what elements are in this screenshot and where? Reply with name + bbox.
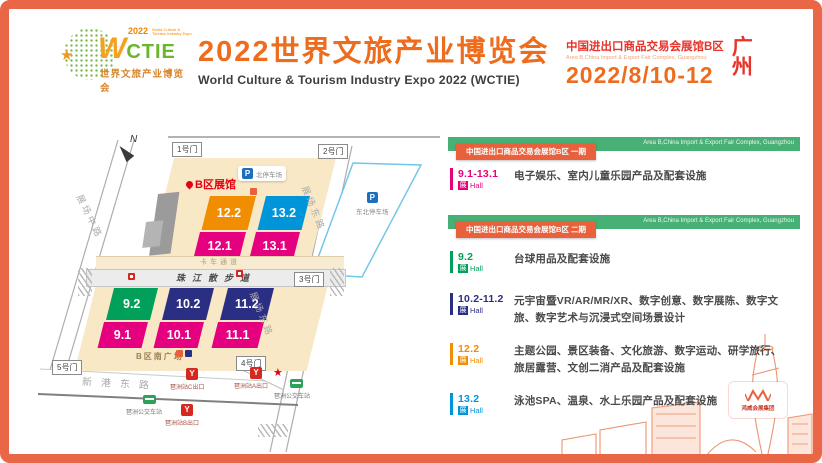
hall-range: 10.2-11.2 <box>458 293 514 305</box>
hall-description: 主题公园、景区装备、文化旅游、数字运动、研学旅行、旅居露营、文创二消产品及配套设… <box>514 343 786 377</box>
hall-description: 元宇宙暨VR/AR/MR/XR、数字创意、数字展陈、数字文旅、数字艺术与沉浸式空… <box>514 293 786 327</box>
entry-10-2-11-2: 10.2-11.2 展 Hall 元宇宙暨VR/AR/MR/XR、数字创意、数字… <box>450 293 786 327</box>
metro-icon: Y <box>186 368 198 380</box>
compass-icon: N <box>116 138 142 168</box>
logo-ctie: CTIE <box>126 41 176 63</box>
parking-icon: P <box>367 192 378 203</box>
bus-icon <box>143 395 156 404</box>
metro-icon: Y <box>250 367 262 379</box>
venue-map: N 1号门 2号门 3号门 4号门 5号门 B区展馆 P 北停车场 12.2 1… <box>38 122 443 454</box>
header-venue-date: 中国进出口商品交易会展馆B区 Area B China Import & Exp… <box>566 38 753 89</box>
venue-name: 中国进出口商品交易会展馆B区 <box>566 38 724 54</box>
hall-description: 台球用品及配套设施 <box>514 251 786 268</box>
entry-9-1-13-1: 9.1-13.1 展 Hall 电子娱乐、室内儿童乐园产品及配套设施 <box>450 168 786 190</box>
hall-range: 9.1-13.1 <box>458 168 514 180</box>
gate-3: 3号门 <box>294 272 324 287</box>
ramp <box>330 268 344 296</box>
gate-1: 1号门 <box>172 142 202 157</box>
hall-zh-tag: 展 <box>458 264 468 273</box>
hall-range: 12.2 <box>458 343 514 355</box>
hall-en-tag: Hall <box>470 356 483 365</box>
ramp <box>258 424 288 437</box>
gate-2: 2号门 <box>318 144 348 159</box>
hall-en-tag: Hall <box>470 264 483 273</box>
hall-10-1: 10.1 <box>154 322 204 348</box>
star-marker-icon: ★ <box>273 366 283 379</box>
location-pin-icon <box>185 179 195 189</box>
page-title: 2022世界文旅产业博览会 <box>198 28 538 70</box>
info-icon <box>250 188 257 195</box>
expo-poster: ★ WCTIE 2022 World Culture & Tourism Ind… <box>0 0 822 463</box>
hall-en-tag: Hall <box>470 181 483 190</box>
city-label: 广 州 <box>732 38 753 78</box>
wctie-logo: ★ WCTIE 2022 World Culture & Tourism Ind… <box>64 26 192 92</box>
hall-en-tag: Hall <box>470 306 483 315</box>
organizer-logo: 鸿威会展集团 <box>729 382 787 418</box>
metro-icon: Y <box>181 404 193 416</box>
bus-stop-label: 琶洲公交车站 <box>126 407 162 416</box>
info-icon <box>185 350 192 357</box>
logo-w: W <box>98 32 126 65</box>
hall-9-2: 9.2 <box>106 288 158 320</box>
parking-icon: P <box>242 168 253 179</box>
entry-9-2: 9.2 展 Hall 台球用品及配套设施 <box>450 251 786 273</box>
truck-lane: 卡车通道 <box>96 256 344 270</box>
ramp <box>78 268 92 296</box>
page-subtitle: World Culture & Tourism Industry Expo 20… <box>198 73 538 87</box>
east-parking: P 东北停车场 <box>356 192 389 216</box>
bus-icon <box>290 379 303 388</box>
metro-exit-a-label: 琶洲站A出口 <box>234 381 268 390</box>
venue-name-en: Area B China Import & Export Fair Comple… <box>566 55 724 61</box>
info-icon <box>176 350 183 357</box>
phase1-badge: 中国进出口商品交易会展馆B区 一期 <box>456 143 596 160</box>
hall-zh-tag: 展 <box>458 406 468 415</box>
entry-12-2: 12.2 展 Hall 主题公园、景区装备、文化旅游、数字运动、研学旅行、旅居露… <box>450 343 786 377</box>
hall-9-1: 9.1 <box>98 322 148 348</box>
logo-tagline-en: World Culture & Tourism Industry Expo <box>152 28 192 37</box>
hall-range: 9.2 <box>458 251 514 263</box>
event-date: 2022/8/10-12 <box>566 62 724 89</box>
header-title-block: 2022世界文旅产业博览会 World Culture & Tourism In… <box>198 28 538 87</box>
hall-zh-tag: 展 <box>458 306 468 315</box>
hall-zh-tag: 展 <box>458 356 468 365</box>
hall-13-2: 13.2 <box>258 196 310 230</box>
hall-10-2: 10.2 <box>162 288 214 320</box>
metro-exit-b-label: 琶洲站B出口 <box>165 418 199 427</box>
area-b-label: B区展馆 <box>186 176 236 192</box>
hall-12-2: 12.2 <box>202 196 256 230</box>
exit-marker-icon <box>128 273 135 280</box>
hall-range: 13.2 <box>458 393 514 405</box>
wings-icon <box>745 389 771 403</box>
north-parking-chip: P 北停车场 <box>238 166 286 181</box>
logo-tagline: 世界文旅产业博览会 <box>100 66 192 94</box>
star-icon: ★ <box>60 46 73 64</box>
logo-year: 2022 <box>128 26 148 36</box>
hall-zh-tag: 展 <box>458 181 468 190</box>
phase2-badge: 中国进出口商品交易会展馆B区 二期 <box>456 221 596 238</box>
exit-marker-icon <box>236 270 243 277</box>
organizer-name: 鸿威会展集团 <box>741 404 774 412</box>
gate-5: 5号门 <box>52 360 82 375</box>
hall-11-1: 11.1 <box>212 322 264 348</box>
metro-exit-c-label: 琶洲站C出口 <box>170 382 204 391</box>
bus-stop-label: 琶洲公交车站 <box>274 391 310 400</box>
hall-description: 电子娱乐、室内儿童乐园产品及配套设施 <box>514 168 786 185</box>
hall-en-tag: Hall <box>470 406 483 415</box>
